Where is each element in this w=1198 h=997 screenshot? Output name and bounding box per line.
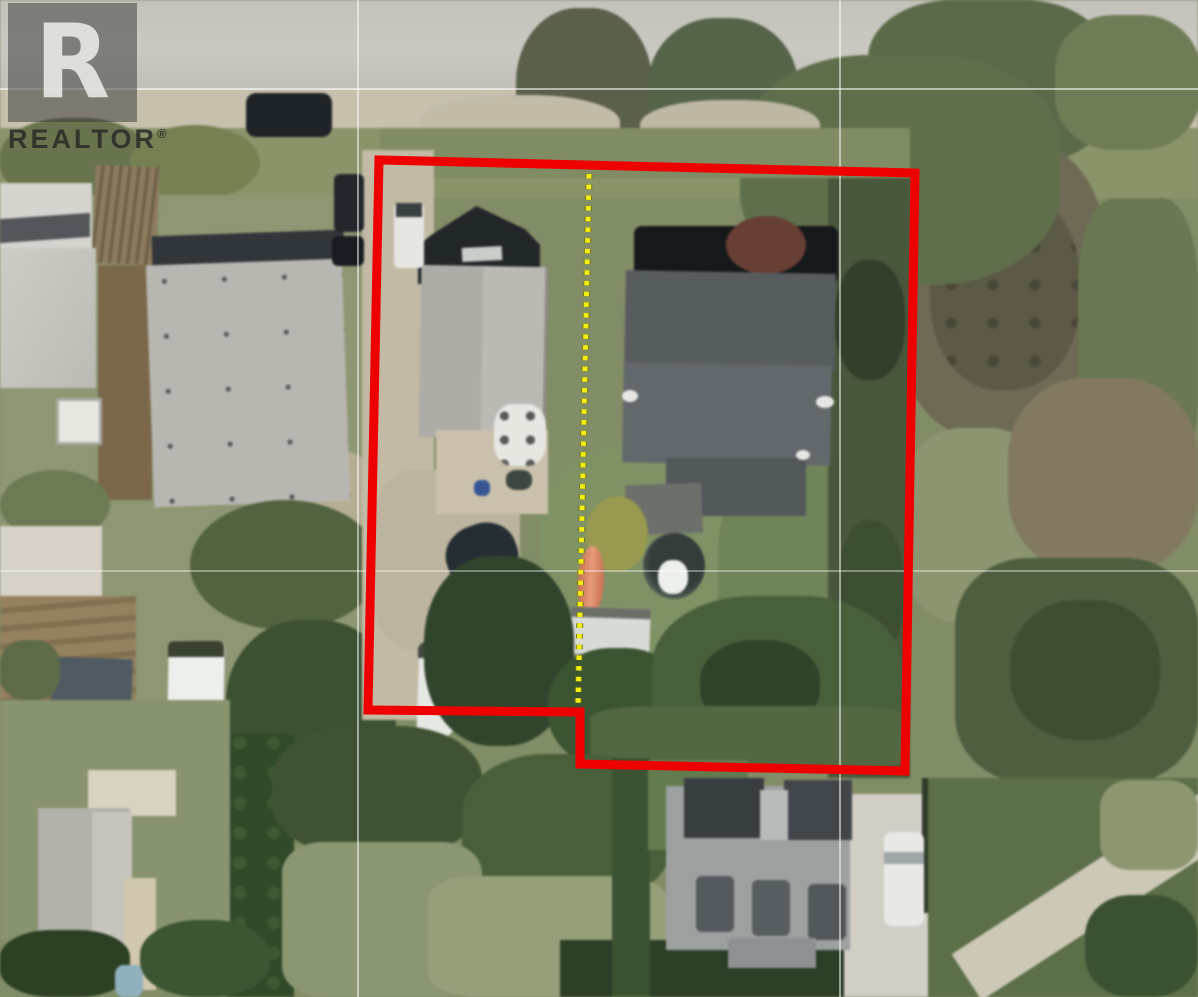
realtor-label-text: REALTOR <box>8 124 157 154</box>
lot-divider-casing <box>578 174 589 708</box>
property-boundary-line <box>368 160 915 771</box>
registered-mark: ® <box>157 126 170 141</box>
realtor-watermark: R REALTOR® <box>8 3 188 155</box>
lot-divider-line <box>578 174 589 708</box>
realtor-logo-box: R <box>8 3 137 122</box>
aerial-photo: R REALTOR® <box>0 0 1198 997</box>
realtor-label: REALTOR® <box>8 124 188 155</box>
realtor-logo-r: R <box>35 11 110 114</box>
